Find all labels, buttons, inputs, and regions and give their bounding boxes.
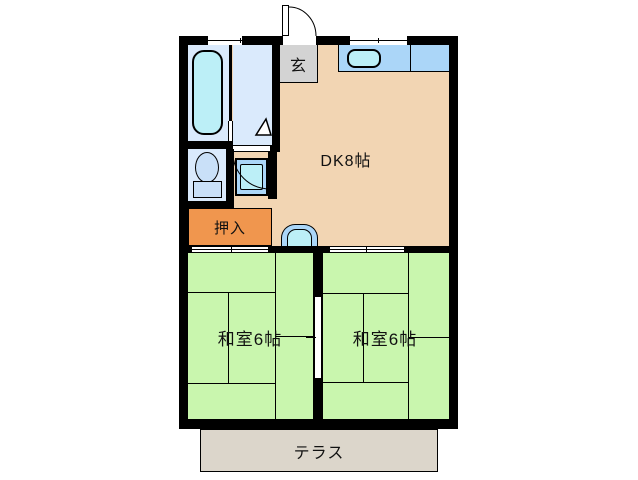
washroom-door-swing-icon <box>233 153 270 189</box>
bath-door-triangle-icon <box>256 119 271 135</box>
entrance-door-swing-icon <box>289 7 316 36</box>
floor-plan: 押入 玄 DK8帖 和室6帖 和室6帖 テラス <box>0 0 638 480</box>
door-swing-overlay <box>0 0 638 480</box>
